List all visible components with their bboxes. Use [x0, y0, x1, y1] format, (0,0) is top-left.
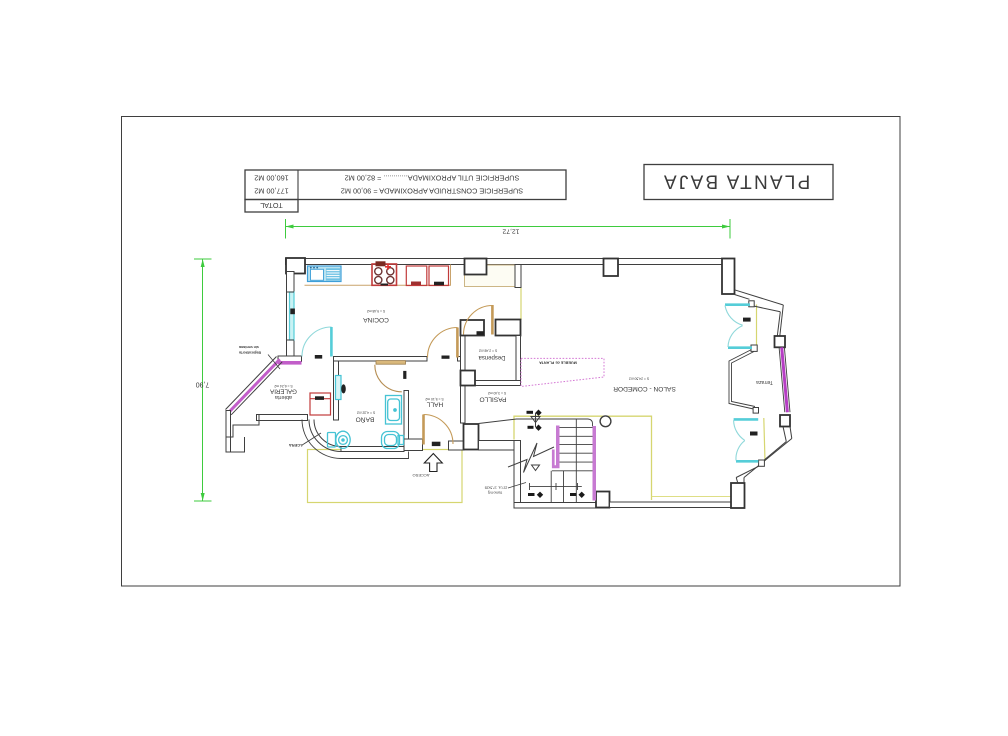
svg-text:ACCESO: ACCESO	[413, 473, 430, 478]
svg-text:S = 24,50 m2: S = 24,50 m2	[629, 376, 649, 380]
svg-text:PLANTA BAJA: PLANTA BAJA	[662, 171, 810, 192]
svg-text:S = 3,40 m2: S = 3,40 m2	[488, 391, 506, 395]
svg-text:sin ventana: sin ventana	[238, 345, 259, 349]
svg-text:MUEBLE de PLANTA: MUEBLE de PLANTA	[539, 361, 577, 365]
svg-text:ACERA: ACERA	[289, 443, 303, 448]
svg-text:S = 9,48 m2: S = 9,48 m2	[367, 309, 385, 313]
svg-text:S = 5,10 m2: S = 5,10 m2	[425, 397, 443, 401]
svg-text:BAÑO: BAÑO	[356, 415, 375, 424]
svg-text:S = 4,32 m2: S = 4,32 m2	[357, 411, 375, 415]
svg-text:S = 2,48 m2: S = 2,48 m2	[479, 348, 497, 352]
svg-text:GALERIA: GALERIA	[269, 388, 297, 395]
svg-text:177,00 M2: 177,00 M2	[254, 187, 288, 196]
svg-text:S = 6,24 m2: S = 6,24 m2	[274, 384, 292, 388]
svg-text:Despensa: Despensa	[478, 354, 506, 360]
svg-text:abierta: abierta	[274, 394, 292, 400]
svg-text:SUPERFICIE CONSTRUIDA APROXIMA: SUPERFICIE CONSTRUIDA APROXIMADA = 90,00…	[341, 187, 523, 196]
svg-text:COCINA: COCINA	[363, 316, 389, 323]
svg-text:Bajocubierta: Bajocubierta	[238, 350, 261, 354]
svg-text:TOTAL: TOTAL	[260, 201, 283, 210]
svg-text:Terraza: Terraza	[756, 379, 773, 385]
svg-text:7,90: 7,90	[196, 381, 210, 388]
svg-text:12,72: 12,72	[502, 227, 519, 234]
svg-text:SUPERFICIE UTIL APROXIMADA....: SUPERFICIE UTIL APROXIMADA............ =…	[345, 174, 520, 183]
svg-text:SALON - COMEDOR: SALON - COMEDOR	[613, 385, 676, 392]
svg-text:HALL: HALL	[426, 401, 443, 408]
svg-text:tramo h/g: tramo h/g	[488, 490, 502, 494]
svg-text:160,00 M2: 160,00 M2	[254, 174, 288, 183]
svg-text:22 t.a. 17,5x28: 22 t.a. 17,5x28	[485, 486, 508, 490]
svg-text:PASILLO: PASILLO	[480, 396, 507, 403]
